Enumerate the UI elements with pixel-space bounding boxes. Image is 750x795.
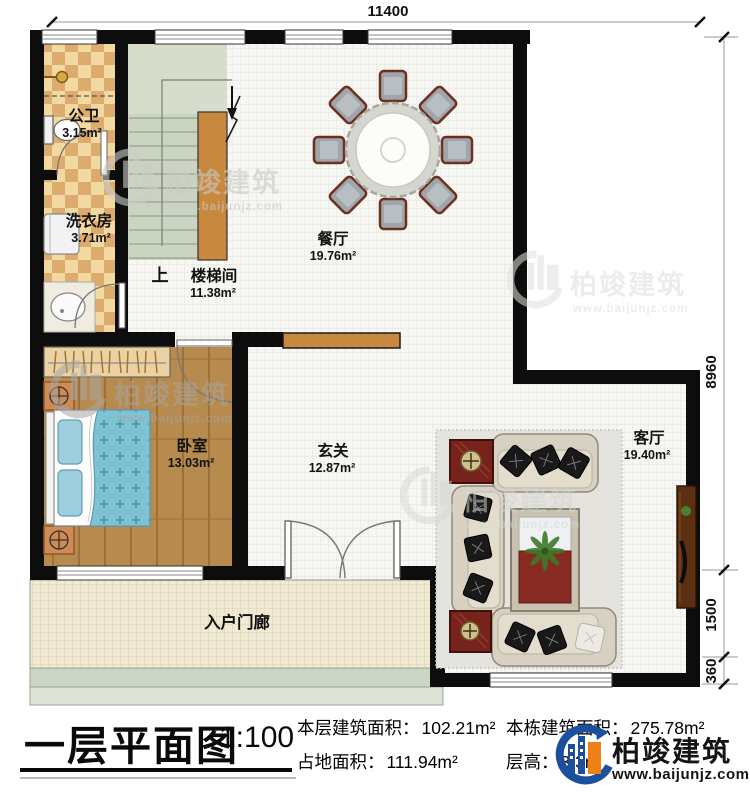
label-bedroom: 卧室 — [176, 436, 207, 455]
wall-step — [513, 370, 700, 384]
wall-dining-right — [513, 30, 527, 384]
label-laundry: 洗衣房 — [66, 211, 113, 230]
area-dining: 19.76m² — [310, 249, 357, 263]
label-stairwell: 楼梯间 — [191, 266, 238, 285]
bed-headboard — [46, 412, 54, 524]
title-underline-thin — [20, 777, 296, 779]
shower-head-icon — [57, 72, 68, 83]
nightstand-bottom — [44, 526, 74, 554]
label-porch: 入户门廊 — [204, 612, 270, 632]
bed-pillow-1 — [58, 420, 82, 464]
stat-label: 占地面积： — [297, 752, 385, 772]
stat-value: 102.21m² — [422, 718, 496, 738]
end-table-bottom — [450, 611, 491, 652]
wall-bed-bottom-b — [203, 566, 285, 580]
area-laundry: 3.71m² — [71, 231, 111, 245]
console-plant-icon — [681, 506, 691, 516]
hall-cabinet — [283, 333, 400, 348]
watermark-text: 柏竣建筑 — [114, 379, 230, 410]
stair-landing — [128, 44, 227, 114]
watermark-url: www.baijunjz.com — [572, 303, 688, 315]
wall-bed-bottom-a — [30, 566, 57, 580]
laundry-door-leaf — [119, 283, 125, 328]
porch-step-1 — [30, 668, 443, 687]
window-living-south — [490, 673, 612, 687]
bedroom-door-leaf — [177, 340, 232, 346]
entry-door-leaf-left — [285, 521, 291, 578]
title-underline-thick — [20, 768, 292, 772]
watermark-url: www.baijunjz.com — [116, 413, 232, 425]
end-table-top — [450, 440, 493, 483]
brand-url: www.baijunjz.com — [612, 766, 749, 783]
coffee-table-plant — [525, 531, 565, 571]
plan-title: 一层平面图 — [24, 712, 239, 772]
window-top-2 — [155, 30, 245, 44]
dim-right-3: 360 — [703, 658, 720, 683]
dim-top-width: 11400 — [368, 3, 409, 20]
laundry-sink-icon — [51, 293, 85, 321]
stat-footprint-area: 占地面积：111.94m² — [297, 749, 458, 774]
wall-bath-divider-a — [30, 170, 57, 180]
watermark-url: www.baijunjz.com — [464, 519, 580, 531]
window-top-4 — [368, 30, 452, 44]
wall-left — [30, 30, 44, 580]
stair-up-label: 上 — [152, 266, 169, 285]
dining-set — [314, 71, 472, 229]
window-bedroom-south — [57, 566, 203, 580]
watermark-url: www.baijunjz.com — [167, 201, 283, 213]
tv-console — [677, 486, 696, 608]
stat-label: 本层建筑面积： — [297, 718, 420, 738]
watermark-text: 柏竣建筑 — [462, 485, 578, 516]
watermark-text: 柏竣建筑 — [165, 167, 281, 198]
window-top-3 — [285, 30, 343, 44]
bed-pillow-2 — [58, 470, 82, 516]
floor-plan: 柏竣建筑 www.baijunjz.com 柏竣建筑 www.baijunjz.… — [0, 0, 750, 706]
porch-step-2 — [30, 687, 443, 705]
entry-door-leaf-right — [394, 521, 400, 578]
stat-floor-area: 本层建筑面积：102.21m² — [297, 715, 495, 740]
wall-bottom-b — [612, 673, 700, 687]
label-dining: 餐厅 — [316, 229, 349, 248]
dim-right-2: 1500 — [703, 598, 720, 631]
plan-scale: 1:100 — [219, 721, 294, 755]
label-bathroom: 公卫 — [68, 107, 100, 125]
brand-name: 柏竣建筑 — [612, 730, 732, 770]
dining-table-top — [356, 113, 430, 187]
area-foyer: 12.87m² — [309, 461, 356, 475]
brand-logo-icon — [551, 724, 615, 795]
dim-right-1: 8960 — [703, 355, 720, 388]
window-top-1 — [42, 30, 97, 44]
toilet-tank — [44, 116, 53, 144]
label-living: 客厅 — [633, 428, 665, 447]
area-bathroom: 3.15m² — [62, 126, 102, 140]
wall-bedroom-top-a — [30, 332, 175, 347]
wall-bedroom-right — [232, 332, 248, 566]
stat-value: 111.94m² — [387, 752, 458, 772]
area-bedroom: 13.03m² — [168, 456, 215, 470]
watermark-text: 柏竣建筑 — [570, 269, 686, 300]
bed-mattress — [90, 410, 150, 526]
wall-top — [30, 30, 530, 44]
area-living: 19.40m² — [624, 448, 671, 462]
title-block: 一层平面图 1:100 本层建筑面积：102.21m² 占地面积：111.94m… — [0, 706, 750, 795]
bed — [46, 410, 150, 526]
label-foyer: 玄关 — [317, 441, 349, 460]
area-stairwell: 11.38m² — [190, 286, 236, 300]
